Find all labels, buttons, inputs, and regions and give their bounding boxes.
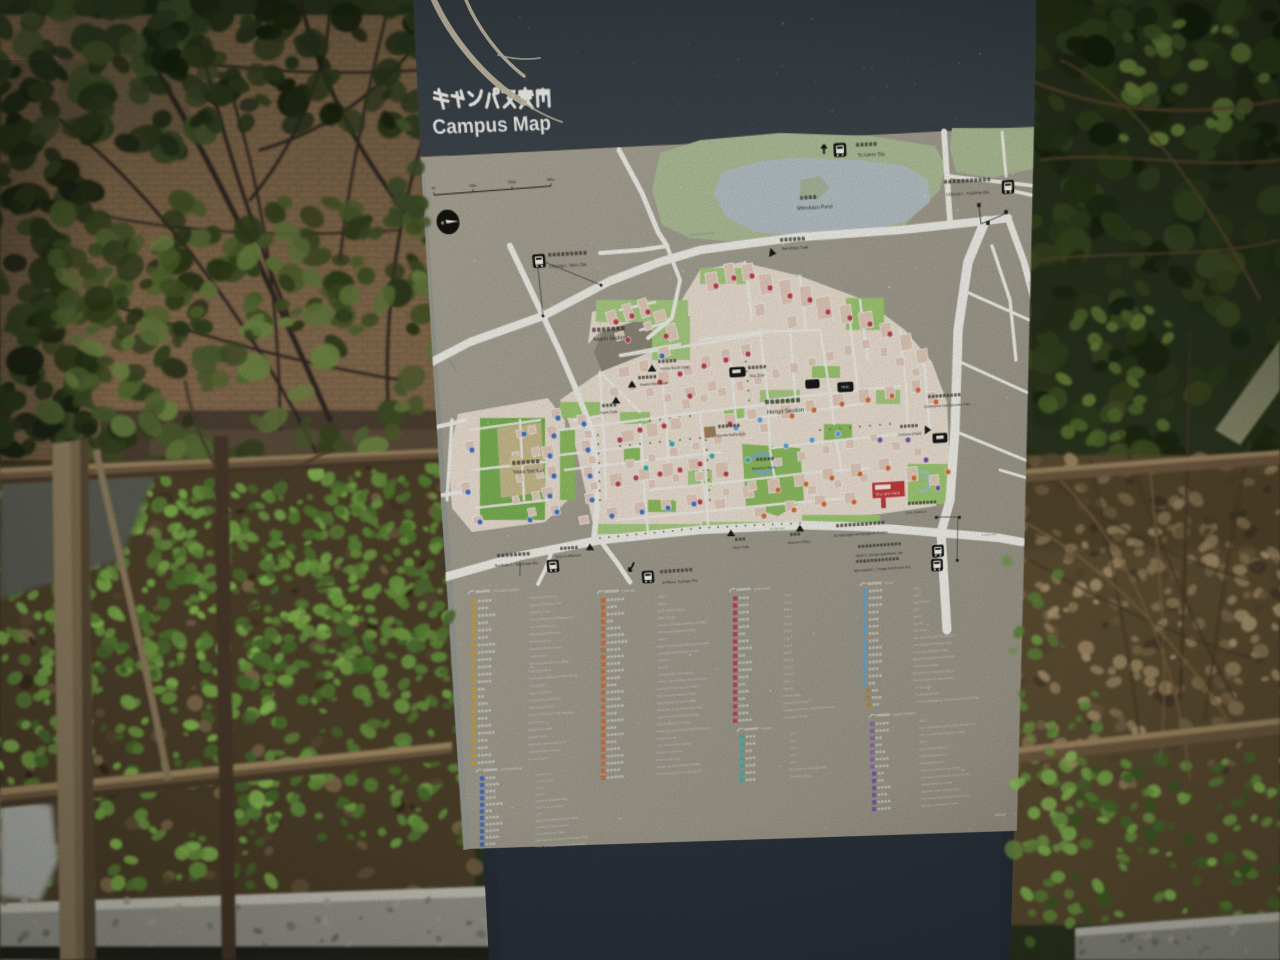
svg-text:Eng.8: Eng.8: [784, 644, 792, 648]
svg-text:Eng.11: Eng.11: [783, 665, 793, 669]
svg-text:LH.3: LH.3: [535, 812, 542, 816]
svg-text:0m: 0m: [431, 187, 436, 191]
svg-text:Eng.7: Eng.7: [784, 636, 792, 640]
svg-text:Sci.7: Sci.7: [790, 761, 797, 765]
svg-text:Med.A: Med.A: [658, 637, 668, 641]
svg-text:Agr.2: Agr.2: [914, 594, 921, 598]
svg-text:Agr.3: Agr.3: [913, 608, 920, 612]
svg-text:Eng.4: Eng.4: [784, 615, 793, 619]
svg-text:Eng.3: Eng.3: [784, 608, 792, 612]
svg-text:IBR 1: IBR 1: [919, 719, 927, 723]
svg-text:Law 3: Law 3: [536, 786, 545, 790]
svg-text:Eng.1: Eng.1: [784, 593, 793, 597]
svg-text:2014.03: 2014.03: [995, 813, 1006, 816]
svg-text:Med.1: Med.1: [658, 595, 667, 599]
svg-text:Sci.1: Sci.1: [790, 732, 797, 736]
svg-text:Agr.7A: Agr.7A: [913, 615, 923, 619]
svg-text:AQUA: AQUA: [884, 581, 893, 585]
svg-text:Med.2: Med.2: [658, 602, 667, 606]
svg-text:Eng.13: Eng.13: [783, 680, 793, 684]
svg-text:W.P.T: W.P.T: [919, 740, 927, 744]
svg-text:TAXI: TAXI: [841, 385, 850, 390]
svg-text:Agr.7B: Agr.7B: [913, 622, 923, 626]
svg-text:Eng.10: Eng.10: [783, 658, 793, 662]
svg-text:Eng.6: Eng.6: [784, 629, 792, 633]
svg-text:Sci.4: Sci.4: [790, 746, 798, 750]
svg-text:Law 4: Law 4: [536, 793, 545, 797]
svg-text:Campus Map: Campus Map: [431, 112, 551, 139]
svg-text:Sci.3: Sci.3: [790, 739, 797, 743]
svg-text:Eng.2: Eng.2: [784, 600, 792, 604]
svg-text:Eng.9: Eng.9: [784, 651, 792, 655]
svg-text:200m: 200m: [508, 181, 516, 185]
svg-text:Bus Stop: Bus Stop: [750, 372, 765, 378]
svg-text:Eng.12: Eng.12: [783, 672, 793, 676]
svg-text:Agr.1: Agr.1: [914, 586, 921, 590]
svg-text:Eng.5: Eng.5: [784, 622, 792, 626]
svg-text:100m: 100m: [469, 184, 477, 188]
svg-text:Sci.5: Sci.5: [790, 754, 797, 758]
svg-text:300m: 300m: [547, 178, 555, 182]
